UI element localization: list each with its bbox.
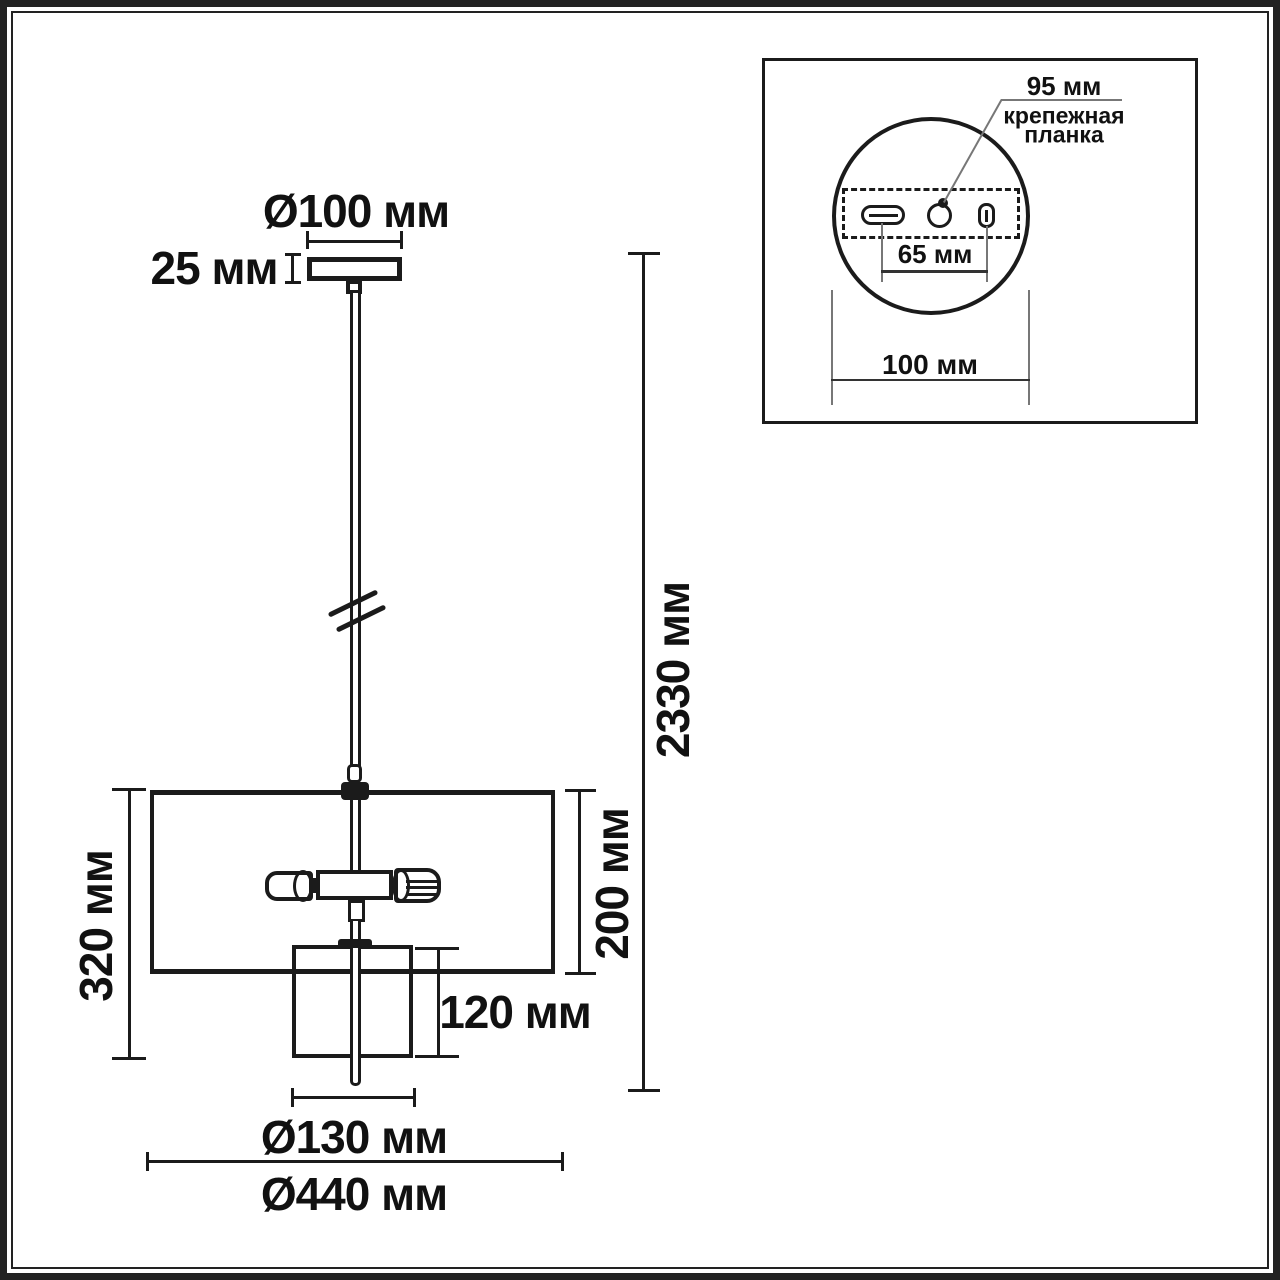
fixture-height-label: 320 мм [73, 850, 119, 1002]
dim-line [306, 240, 403, 243]
dim-ext-line [986, 226, 988, 282]
socket-thread-line [406, 880, 438, 883]
dim-ext-line [415, 1055, 459, 1058]
canopy-height-label: 25 мм [150, 245, 277, 291]
left-socket-ellipse [293, 870, 313, 902]
canopy-footprint-label: 100 мм [882, 351, 978, 379]
dim-serif [628, 1089, 660, 1092]
rod-connector [346, 280, 362, 294]
suspension-rod-upper [350, 293, 361, 766]
canopy-diameter-label: Ø100 мм [263, 188, 449, 234]
dim-line-320 [128, 788, 131, 1060]
rod-joint [348, 900, 365, 922]
mounting-slot-right-midline [985, 210, 988, 222]
dim-line-200 [578, 789, 581, 975]
dim-ext-line [831, 290, 833, 405]
dim-ext-line [1028, 290, 1030, 405]
dim-tick [413, 1088, 416, 1107]
drawing-canvas: Ø100 мм 25 мм 320 мм 200 мм 23 [0, 0, 1280, 1280]
inner-shade-diameter-label: Ø130 мм [261, 1114, 447, 1160]
dim-line-2330 [642, 252, 645, 1092]
dim-line-130 [291, 1096, 416, 1099]
dim-line-65 [881, 270, 988, 273]
dim-tick [561, 1152, 564, 1171]
dim-serif [565, 972, 596, 975]
rod-middle [350, 800, 361, 871]
plate-width-label: 95 мм [1027, 73, 1102, 99]
canopy-outline [307, 257, 402, 281]
dim-ext-line [881, 223, 883, 282]
overall-height-label: 2330 мм [650, 582, 696, 758]
shade-diameter-label: Ø440 мм [261, 1171, 447, 1217]
dim-line-440 [146, 1160, 564, 1163]
dim-serif [112, 1057, 146, 1060]
rod-bottom [350, 948, 361, 1086]
shade-height-label: 200 мм [589, 808, 635, 960]
socket-center-block [316, 870, 393, 900]
socket-thread-line [406, 886, 438, 889]
mounting-slot-left-midline [869, 214, 898, 217]
inner-shade-height-label: 120 мм [439, 989, 591, 1035]
canopy-height-line [291, 253, 294, 284]
hole-spacing-label: 65 мм [898, 241, 973, 267]
socket-thread-line [406, 893, 438, 896]
rod-node [347, 764, 362, 783]
plate-name-line2: планка [1024, 124, 1104, 147]
canopy-height-tick-bottom [285, 281, 301, 284]
